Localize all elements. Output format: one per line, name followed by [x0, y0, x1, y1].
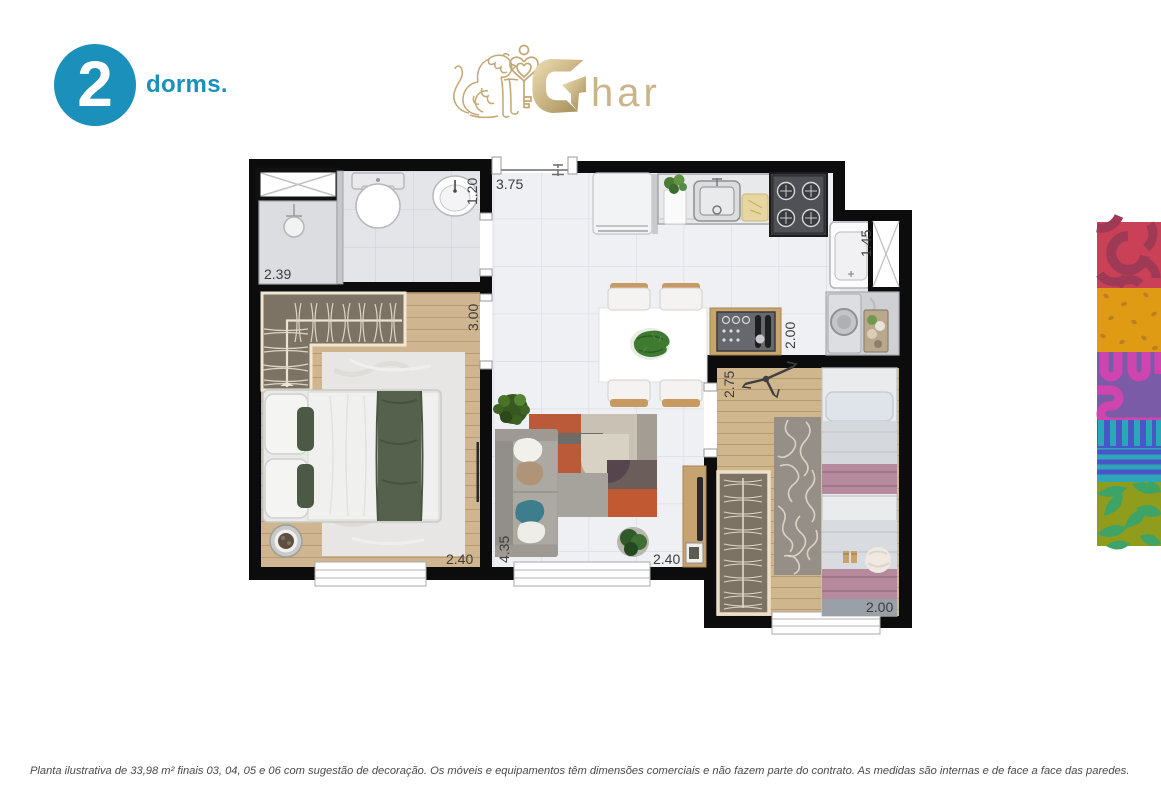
svg-text:1.20: 1.20 — [464, 178, 480, 205]
svg-text:4.35: 4.35 — [496, 536, 512, 563]
svg-text:2.75: 2.75 — [721, 371, 737, 398]
svg-text:2.00: 2.00 — [866, 599, 893, 615]
svg-text:2.40: 2.40 — [446, 551, 473, 567]
svg-text:3.00: 3.00 — [465, 304, 481, 331]
svg-text:2.00: 2.00 — [782, 322, 798, 349]
svg-text:1.45: 1.45 — [858, 230, 874, 257]
svg-text:3.75: 3.75 — [496, 176, 523, 192]
svg-text:2.39: 2.39 — [264, 266, 291, 282]
svg-text:2.40: 2.40 — [653, 551, 680, 567]
